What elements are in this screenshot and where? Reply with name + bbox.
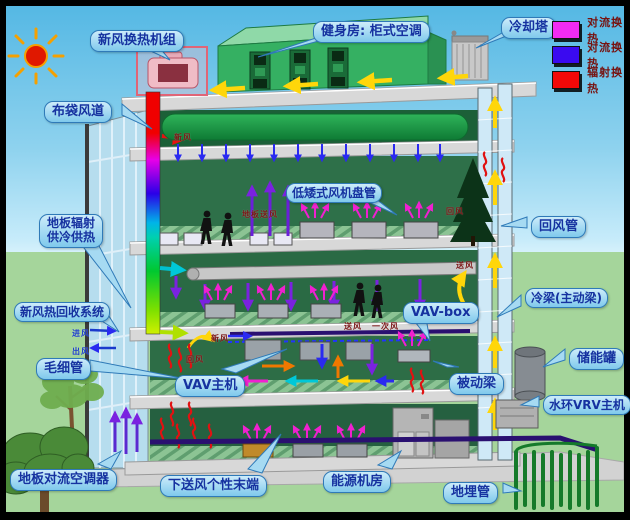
tag-supply-air-f3: 送风: [456, 260, 474, 271]
tag-fresh-air-f2: 新风: [211, 333, 229, 344]
scene: 新风换热机组 布袋风道 健身房: 柜式空调 冷却塔 地板辐射 供冷供热 新风热回…: [6, 6, 624, 512]
tag-supply-air-f2: 送风: [344, 321, 362, 332]
tag-return-air-f4: 回风: [446, 206, 464, 217]
callout-cooling-tower: 冷却塔: [501, 17, 556, 39]
sun-icon: [9, 29, 63, 83]
hvac-diagram: 新风换热机组 布袋风道 健身房: 柜式空调 冷却塔 地板辐射 供冷供热 新风热回…: [0, 0, 630, 520]
callout-floor-convector: 地板对流空调器: [10, 469, 117, 491]
fresh-air-unit: [137, 47, 207, 95]
callout-fresh-air-unit: 新风换热机组: [90, 30, 184, 52]
callout-gym-ac: 健身房: 柜式空调: [313, 21, 430, 43]
tag-floor-supply: 地板送风: [242, 209, 278, 220]
callout-low-fan-coil: 低矮式风机盘管: [286, 183, 382, 203]
storage-tank: [515, 347, 545, 401]
building-illustration: [6, 6, 624, 512]
callout-vav-host: VAV主机: [175, 375, 245, 397]
tag-primary-air: 一次风: [372, 321, 399, 332]
callout-vav-box: VAV-box: [403, 302, 479, 324]
callout-storage-tank: 储能罐: [569, 348, 624, 370]
cabinet-ac-units: [250, 48, 348, 89]
callout-underfloor-terminal: 下送风个性末端: [160, 475, 267, 497]
callout-floor-radiant-line1: 地板辐射: [47, 217, 95, 231]
tag-outlet-air: 出风: [72, 346, 90, 357]
callout-bag-duct: 布袋风道: [44, 101, 112, 123]
tag-inlet-air: 进风: [72, 328, 90, 339]
tag-fresh-air-top: 新风: [174, 132, 192, 143]
callout-energy-room: 能源机房: [323, 471, 391, 493]
callout-heat-recovery: 新风热回收系统: [14, 302, 110, 322]
cooling-tower: [452, 31, 489, 81]
callout-floor-radiant-line2: 供冷供热: [47, 231, 95, 245]
callout-return-air-duct: 回风管: [531, 216, 586, 238]
callout-passive-beam: 被动梁: [449, 373, 504, 395]
callout-ground-pipe: 地埋管: [443, 482, 498, 504]
legend-label-radiation: 辐射换热: [587, 64, 624, 96]
legend-swatch-red: [552, 71, 580, 89]
legend-swatch-magenta: [552, 21, 580, 39]
callout-floor-radiant: 地板辐射 供冷供热: [39, 214, 103, 248]
callout-chilled-beam: 冷梁(主动梁): [525, 288, 608, 308]
legend-item-radiation: 辐射换热: [552, 64, 624, 96]
legend-swatch-blue: [552, 46, 580, 64]
callout-capillary: 毛细管: [36, 358, 91, 380]
tag-return-air-f2: 回风: [186, 354, 204, 365]
callout-water-loop-vrv: 水环VRV主机: [543, 395, 630, 415]
